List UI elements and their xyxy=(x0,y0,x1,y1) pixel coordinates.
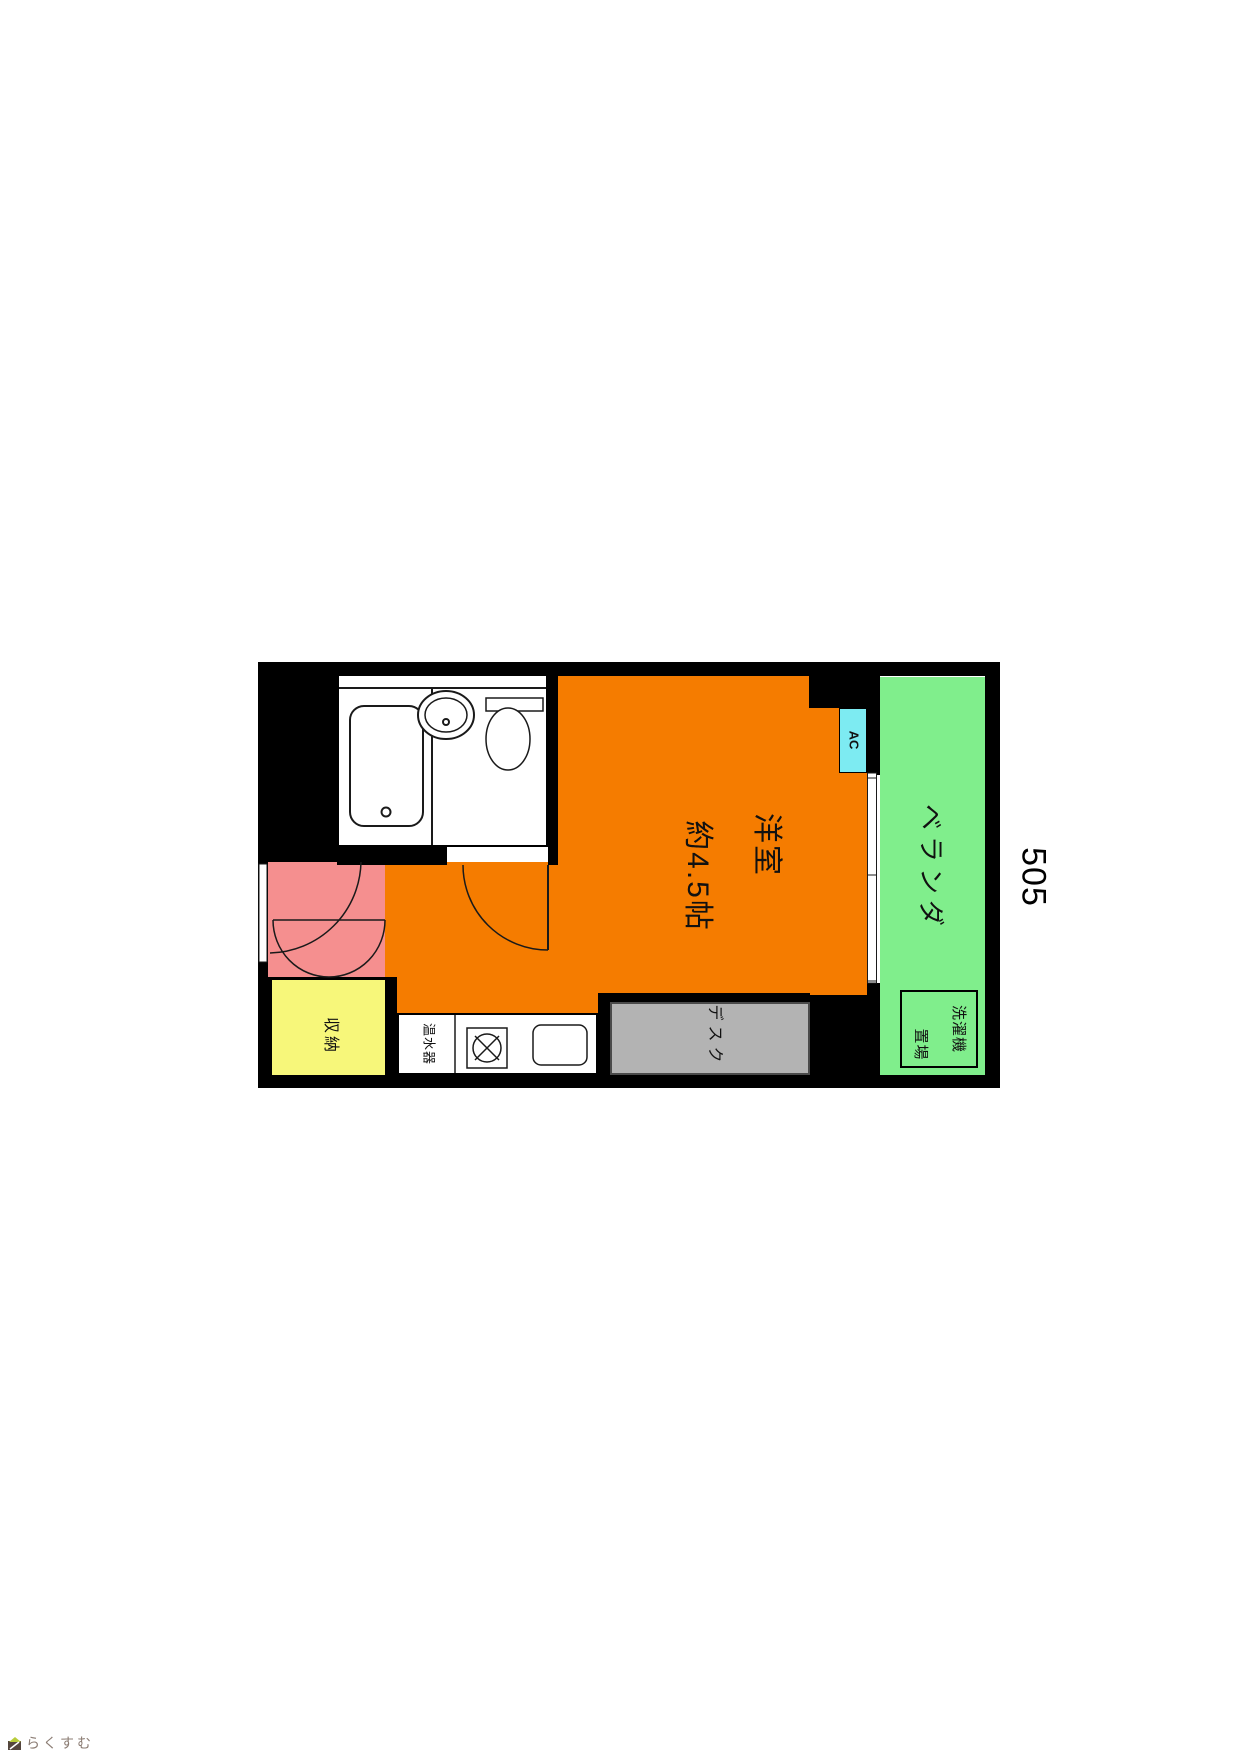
floor-plan: 洋室 約4.5帖 ベランダ AC デスク 収納 温水器 洗濯機 置場 xyxy=(258,662,1000,1088)
room-western-size: 約4.5帖 xyxy=(681,820,714,932)
ac-label: AC xyxy=(846,731,861,750)
entrance-door-opening xyxy=(259,864,267,962)
door-swing-arc xyxy=(463,865,548,950)
veranda-label: ベランダ xyxy=(915,804,945,932)
toilet-bowl-icon xyxy=(486,708,530,770)
door-opening xyxy=(447,848,548,861)
entrance-door-arc xyxy=(270,862,361,953)
washing-machine-label: 洗濯機 置場 xyxy=(911,997,967,1060)
logo-text: らくすむ xyxy=(26,1733,94,1753)
logo: らくすむ xyxy=(8,1733,94,1753)
room-western-label: 洋室 約4.5帖 xyxy=(679,758,783,932)
water-heater-label: 温水器 xyxy=(421,1023,436,1065)
closet-door-arc-left xyxy=(273,920,329,977)
desk-label: デスク xyxy=(705,1004,723,1067)
page: 洋室 約4.5帖 ベランダ AC デスク 収納 温水器 洗濯機 置場 505 ら… xyxy=(0,0,1241,1754)
logo-house-icon xyxy=(8,1737,21,1750)
washing-machine-line2: 置場 xyxy=(913,1029,930,1061)
storage-label: 収納 xyxy=(321,1017,339,1055)
kitchen-sink-icon xyxy=(533,1025,587,1065)
window-strip xyxy=(868,773,877,983)
fixtures-overlay xyxy=(258,662,1000,1088)
room-western-name: 洋室 xyxy=(750,813,783,877)
unit-number: 505 xyxy=(1014,847,1053,907)
closet-door-arc-right xyxy=(329,920,385,977)
washing-machine-line1: 洗濯機 xyxy=(950,1005,967,1053)
